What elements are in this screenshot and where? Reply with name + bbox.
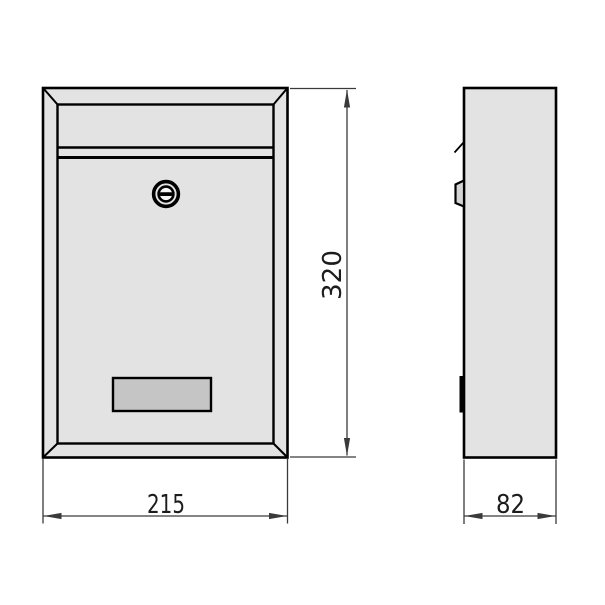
arrowhead-right-icon	[269, 513, 287, 519]
height-dimension-label: 320	[318, 250, 348, 300]
side-body	[464, 88, 556, 458]
front-view	[43, 88, 288, 458]
side-flap-hinge-mark-icon	[455, 143, 464, 153]
dimension-depth: 82	[464, 460, 556, 525]
mailbox-technical-drawing: 320 215 82	[0, 0, 605, 605]
dimension-height: 320	[290, 89, 356, 458]
dimension-width: 215	[43, 459, 288, 524]
arrowhead-left-icon	[44, 513, 62, 519]
drawing-canvas: 320 215 82	[0, 0, 605, 605]
arrowhead-left-icon	[465, 513, 483, 519]
name-plate	[113, 378, 211, 411]
depth-dimension-label: 82	[496, 490, 525, 520]
width-dimension-label: 215	[147, 490, 185, 520]
side-lock-cylinder-icon	[456, 181, 465, 207]
side-name-plate-edge	[460, 376, 465, 413]
arrowhead-up-icon	[344, 90, 350, 108]
lock-icon	[154, 182, 179, 207]
lock-keyslot	[160, 192, 173, 196]
side-view	[455, 88, 557, 458]
arrowhead-right-icon	[538, 513, 556, 519]
arrowhead-down-icon	[344, 438, 350, 456]
